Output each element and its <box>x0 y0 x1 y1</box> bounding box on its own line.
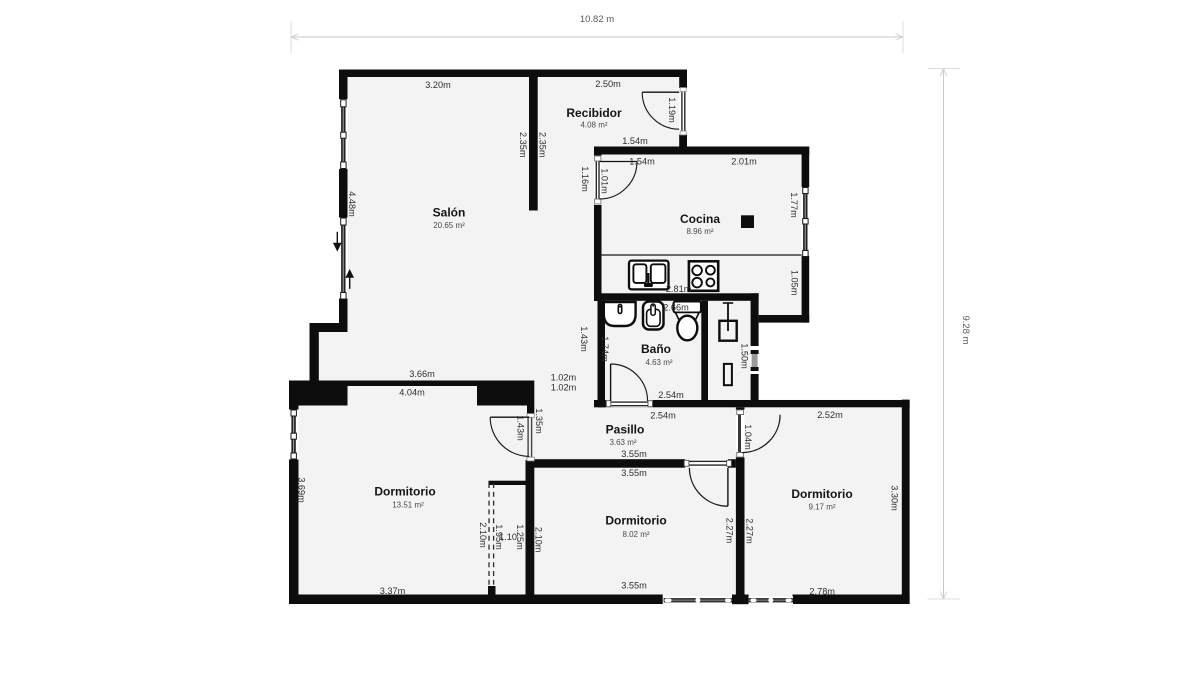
svg-text:1.04m: 1.04m <box>743 424 753 450</box>
svg-text:1.02m: 1.02m <box>551 373 577 383</box>
svg-text:1.05m: 1.05m <box>790 270 800 296</box>
svg-text:3.55m: 3.55m <box>621 449 647 459</box>
svg-text:1.02m: 1.02m <box>551 383 577 393</box>
svg-text:4.63 m²: 4.63 m² <box>645 358 672 367</box>
svg-text:1.25m: 1.25m <box>515 524 525 550</box>
svg-text:1.74m: 1.74m <box>600 336 610 362</box>
svg-text:2.10m: 2.10m <box>533 527 543 553</box>
svg-text:2.78m: 2.78m <box>809 587 835 597</box>
svg-text:Recibidor: Recibidor <box>566 106 622 120</box>
svg-text:2.01m: 2.01m <box>731 157 757 167</box>
svg-text:10.82 m: 10.82 m <box>580 14 614 25</box>
svg-text:Dormitorio: Dormitorio <box>791 487 852 501</box>
svg-text:2.54m: 2.54m <box>658 390 684 400</box>
svg-text:13.51 m²: 13.51 m² <box>392 501 424 510</box>
svg-text:4.08 m²: 4.08 m² <box>580 121 607 130</box>
svg-text:3.37m: 3.37m <box>380 586 406 596</box>
svg-text:2.27m: 2.27m <box>745 518 755 544</box>
svg-text:1.54m: 1.54m <box>622 136 648 146</box>
svg-text:2.10m: 2.10m <box>478 522 488 548</box>
svg-text:1.35m: 1.35m <box>534 408 544 434</box>
svg-text:Dormitorio: Dormitorio <box>605 514 666 528</box>
svg-text:2.50m: 2.50m <box>595 79 621 89</box>
svg-text:3.63 m²: 3.63 m² <box>609 438 636 447</box>
svg-text:1.16m: 1.16m <box>580 166 590 192</box>
svg-text:1.54m: 1.54m <box>629 157 655 167</box>
svg-text:Pasillo: Pasillo <box>606 423 645 437</box>
svg-text:2.35m: 2.35m <box>538 132 548 158</box>
svg-text:1.19m: 1.19m <box>667 97 677 123</box>
svg-text:1.95m: 1.95m <box>494 524 504 550</box>
svg-text:1.43m: 1.43m <box>579 326 589 352</box>
svg-text:1.01m: 1.01m <box>600 168 610 194</box>
svg-text:8.02 m²: 8.02 m² <box>622 530 649 539</box>
svg-text:3.30m: 3.30m <box>889 485 899 511</box>
svg-text:3.55m: 3.55m <box>621 468 647 478</box>
svg-text:4.48m: 4.48m <box>347 191 357 217</box>
svg-text:1.50m: 1.50m <box>739 343 749 369</box>
svg-text:4.04m: 4.04m <box>399 388 425 398</box>
svg-text:2.52m: 2.52m <box>817 410 843 420</box>
svg-text:8.96 m²: 8.96 m² <box>686 227 713 236</box>
svg-text:9.17 m²: 9.17 m² <box>808 503 835 512</box>
svg-text:3.69m: 3.69m <box>297 477 307 503</box>
svg-text:Dormitorio: Dormitorio <box>374 485 435 499</box>
svg-text:Salón: Salón <box>433 206 466 220</box>
svg-text:2.54m: 2.54m <box>650 411 676 421</box>
svg-text:1.77m: 1.77m <box>789 192 799 218</box>
svg-text:9.28 m: 9.28 m <box>960 315 971 344</box>
svg-text:3.55m: 3.55m <box>621 580 647 590</box>
svg-text:3.66m: 3.66m <box>409 369 435 379</box>
svg-text:20.65 m²: 20.65 m² <box>433 221 465 230</box>
svg-text:2.66m: 2.66m <box>663 303 689 313</box>
svg-text:Baño: Baño <box>641 342 671 356</box>
svg-text:1.43m: 1.43m <box>516 415 526 441</box>
svg-text:3.20m: 3.20m <box>425 80 451 90</box>
svg-text:2.27m: 2.27m <box>725 518 735 544</box>
svg-text:2.81m: 2.81m <box>666 284 692 294</box>
svg-text:2.35m: 2.35m <box>518 132 528 158</box>
svg-text:Cocina: Cocina <box>680 212 720 226</box>
